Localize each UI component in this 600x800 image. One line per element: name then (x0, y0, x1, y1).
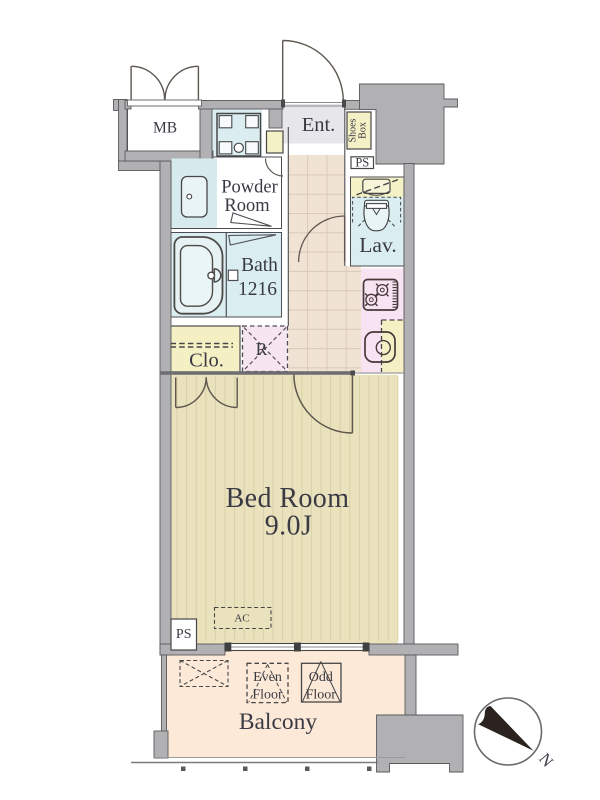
svg-text:Floor: Floor (252, 688, 283, 703)
svg-text:Box: Box (358, 122, 369, 139)
svg-text:Ent.: Ent. (302, 114, 336, 136)
svg-text:R: R (256, 339, 268, 359)
svg-text:9.0J: 9.0J (265, 511, 313, 542)
svg-text:Balcony: Balcony (239, 709, 318, 735)
svg-text:Bath: Bath (241, 255, 278, 276)
svg-text:PS: PS (176, 627, 192, 642)
svg-text:Even: Even (253, 670, 282, 685)
svg-text:Powder: Powder (221, 178, 278, 198)
svg-text:AC: AC (234, 613, 249, 625)
svg-text:1216: 1216 (238, 279, 277, 300)
svg-text:Odd: Odd (309, 670, 333, 685)
svg-text:PS: PS (355, 156, 369, 170)
svg-text:Clo.: Clo. (189, 350, 224, 372)
svg-text:Lav.: Lav. (359, 233, 396, 257)
svg-text:Floor: Floor (306, 688, 337, 703)
svg-text:Bed Room: Bed Room (226, 483, 350, 514)
svg-text:Room: Room (224, 196, 270, 216)
svg-text:MB: MB (153, 120, 177, 137)
